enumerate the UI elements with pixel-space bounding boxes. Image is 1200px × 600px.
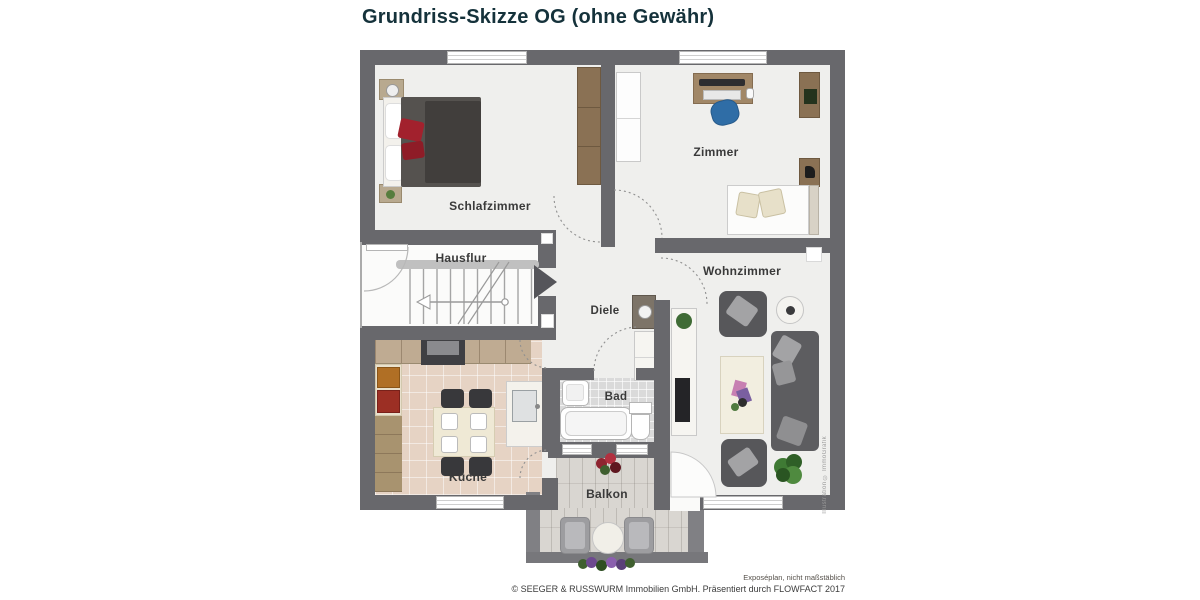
flower xyxy=(625,558,635,568)
toilet-bowl xyxy=(631,414,650,440)
chair-cushion xyxy=(727,446,760,477)
stairwell-open-edge xyxy=(360,242,362,328)
bed-pillow xyxy=(735,191,761,218)
wall-outer-left-upper xyxy=(360,50,375,242)
footer-note: Exposéplan, nicht maßstäblich xyxy=(743,573,845,582)
wall-niche-hausflur-bottom xyxy=(541,314,554,328)
flower xyxy=(600,465,610,475)
hausflur-door-leaf xyxy=(366,244,408,251)
window-zimmer xyxy=(679,51,767,64)
balcony-door-threshold xyxy=(670,494,700,511)
illustrator-watermark: Illustration © ImmoGrafik xyxy=(822,436,828,514)
shelf-zimmer-top xyxy=(799,72,820,118)
dining-chair xyxy=(469,389,492,408)
wall-bad-top-right xyxy=(636,368,656,380)
window-bad-right xyxy=(616,444,648,455)
bed-duvet-fold xyxy=(425,101,481,183)
wall-bedroom-divider xyxy=(601,50,615,247)
room-label-hausflur: Hausflur xyxy=(435,251,486,265)
room-label-schlafzimmer: Schlafzimmer xyxy=(449,199,531,213)
kitchen-counter-left-lower xyxy=(375,416,402,492)
washing-machine xyxy=(632,295,656,329)
tv-icon xyxy=(675,378,690,422)
flower xyxy=(610,462,621,473)
wall-hausflur-bottom xyxy=(360,326,556,340)
room-label-wohnzimmer: Wohnzimmer xyxy=(703,264,781,278)
sofa-cushion xyxy=(776,415,809,446)
dining-chair xyxy=(441,389,464,408)
chair-cushion xyxy=(725,295,759,328)
balkon-rail-right xyxy=(688,508,704,554)
wardrobe-zimmer xyxy=(616,72,641,162)
monitor-icon xyxy=(699,79,745,86)
sofa-cushion xyxy=(771,360,796,386)
flower-box-purple xyxy=(578,556,636,571)
window-wohnzimmer xyxy=(703,496,783,509)
red-cushion xyxy=(401,141,425,161)
stove xyxy=(421,337,465,365)
toilet-tank xyxy=(629,402,652,414)
dining-table xyxy=(433,407,495,457)
coffee-table xyxy=(720,356,764,434)
balcony-chair xyxy=(624,517,654,554)
shelf-item xyxy=(804,89,817,104)
wall-wohnzimmer-left xyxy=(654,300,670,510)
page-title: Grundriss-Skizze OG (ohne Gewähr) xyxy=(362,6,714,29)
plant-icon xyxy=(386,190,395,199)
shelf-item xyxy=(805,166,815,178)
faucet-icon xyxy=(535,404,540,409)
chair-seat xyxy=(629,522,649,549)
toilet xyxy=(629,402,652,442)
room-label-bad: Bad xyxy=(605,391,628,403)
sink-basin xyxy=(512,390,537,422)
window-schlafzimmer xyxy=(447,51,527,64)
single-bed-headboard xyxy=(809,185,819,235)
sprig-icon xyxy=(731,403,739,411)
fruit-crate xyxy=(377,390,400,413)
wall-outer-left-lower xyxy=(360,328,375,510)
lamp-icon xyxy=(386,84,399,97)
wall-niche-right xyxy=(806,247,822,262)
floorplan-page: Grundriss-Skizze OG (ohne Gewähr) xyxy=(0,0,1200,600)
bowl-icon xyxy=(738,398,747,407)
armchair xyxy=(721,439,767,487)
room-label-balkon: Balkon xyxy=(586,487,628,501)
mouse-icon xyxy=(746,88,754,99)
footer-copyright: © SEEGER & RUSSWURM Immobilien GmbH. Prä… xyxy=(511,584,845,594)
plant-on-unit xyxy=(676,313,692,329)
stove-top xyxy=(427,341,459,355)
wall-niche-hausflur-top xyxy=(541,233,553,244)
wardrobe-schlafzimmer xyxy=(577,67,601,185)
window-bad-left xyxy=(562,444,592,455)
shelf-zimmer-bottom xyxy=(799,158,820,187)
sofa xyxy=(771,331,819,451)
plate xyxy=(470,436,487,453)
kitchen-sink-unit xyxy=(506,381,543,447)
plate xyxy=(441,436,458,453)
room-label-kueche: Küche xyxy=(449,470,487,484)
potted-plant xyxy=(772,452,806,486)
plant-leaf xyxy=(776,468,790,482)
side-table-round xyxy=(776,296,804,324)
bed-pillow xyxy=(758,188,787,218)
plate xyxy=(470,413,487,430)
bathtub xyxy=(560,407,632,440)
keyboard-icon xyxy=(703,90,741,100)
basin-inner xyxy=(566,384,584,401)
washbasin xyxy=(562,380,589,406)
balcony-chair xyxy=(560,517,590,554)
chair-seat xyxy=(565,522,585,549)
plate xyxy=(441,413,458,430)
room-label-zimmer: Zimmer xyxy=(693,145,738,159)
wall-schlafzimmer-bottom xyxy=(360,230,545,245)
armchair xyxy=(719,291,767,337)
washer-door-icon xyxy=(638,305,652,319)
window-kueche xyxy=(436,496,504,509)
flower-pot-red xyxy=(595,452,623,476)
room-label-diele: Diele xyxy=(591,305,620,317)
tub-inner xyxy=(565,411,627,436)
wall-kueche-right-lower xyxy=(542,478,558,510)
balcony-table xyxy=(592,522,624,554)
table-decor xyxy=(786,306,795,315)
wall-outer-right xyxy=(830,50,845,510)
fruit-crate xyxy=(377,367,400,388)
